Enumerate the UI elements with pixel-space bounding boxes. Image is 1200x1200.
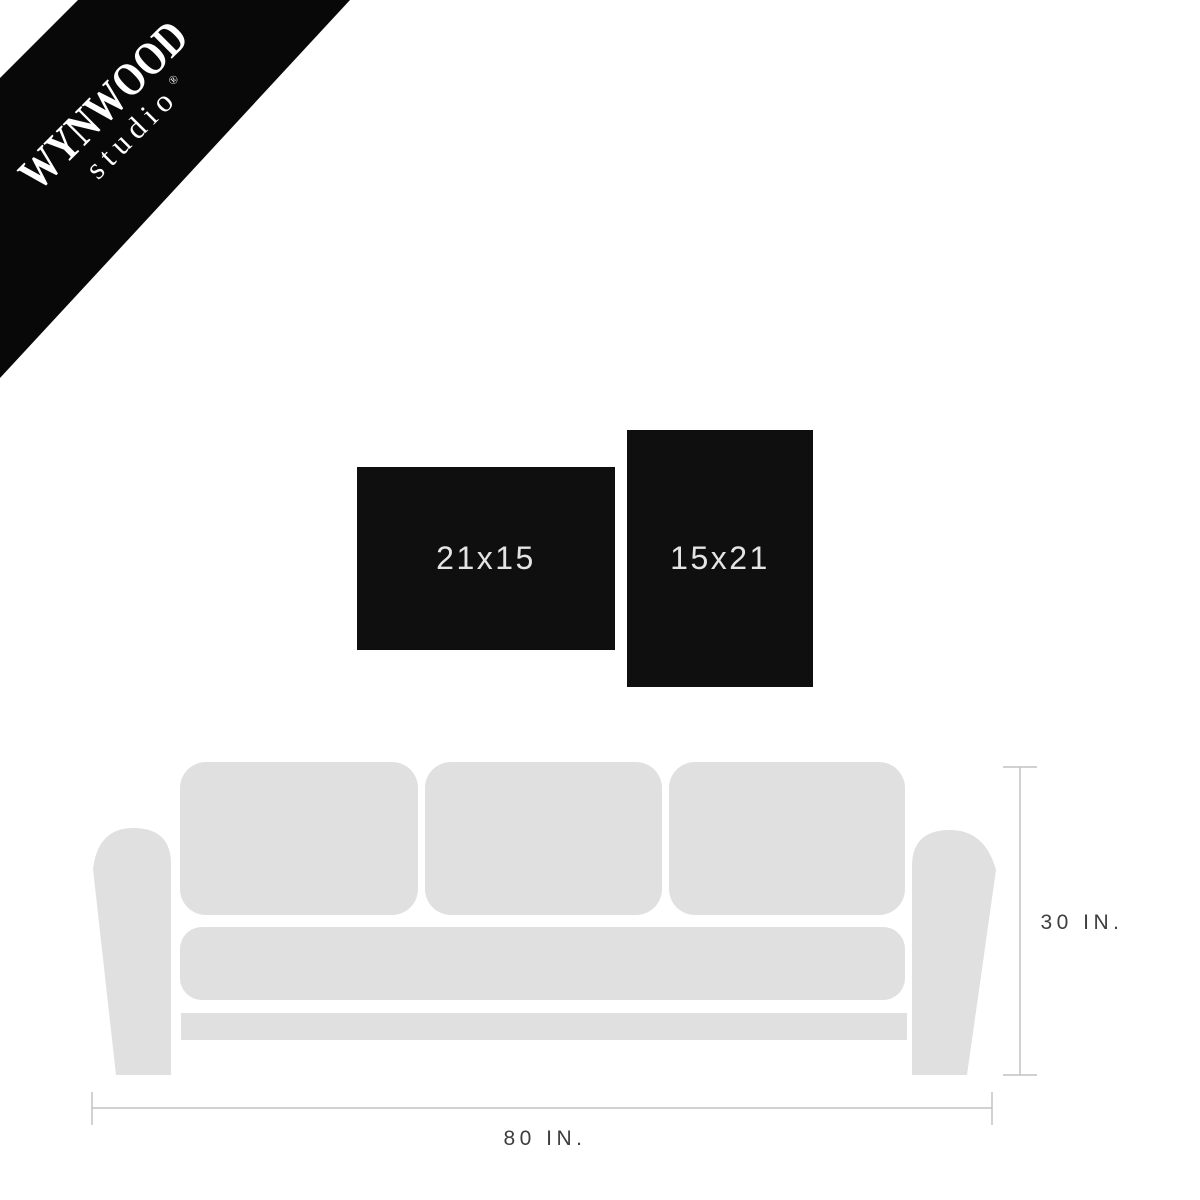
- frame-landscape-21x15: 21x15: [357, 467, 615, 650]
- sofa-right-arm: [912, 830, 996, 1075]
- sofa-back-cushion-right: [669, 762, 905, 915]
- sofa-base: [181, 1013, 907, 1040]
- frame-portrait-15x21: 15x21: [627, 430, 813, 687]
- sofa-back-cushion-middle: [425, 762, 662, 915]
- sofa-seat-cushion: [180, 927, 905, 1000]
- sofa-silhouette: [93, 762, 996, 1075]
- sofa-width-label: 80 IN.: [503, 1127, 586, 1151]
- frame-portrait-label: 15x21: [670, 540, 770, 577]
- sofa-back-cushion-left: [180, 762, 418, 915]
- height-dimension-line: [1003, 767, 1037, 1075]
- brand-ribbon: WYNWOOD studio ®: [0, 0, 350, 378]
- sofa-left-arm: [93, 828, 171, 1075]
- frame-landscape-label: 21x15: [436, 540, 536, 577]
- width-dimension-line: [92, 1092, 992, 1125]
- sofa-height-label: 30 IN.: [1040, 911, 1123, 935]
- size-guide-canvas: WYNWOOD studio ®: [0, 0, 1200, 1200]
